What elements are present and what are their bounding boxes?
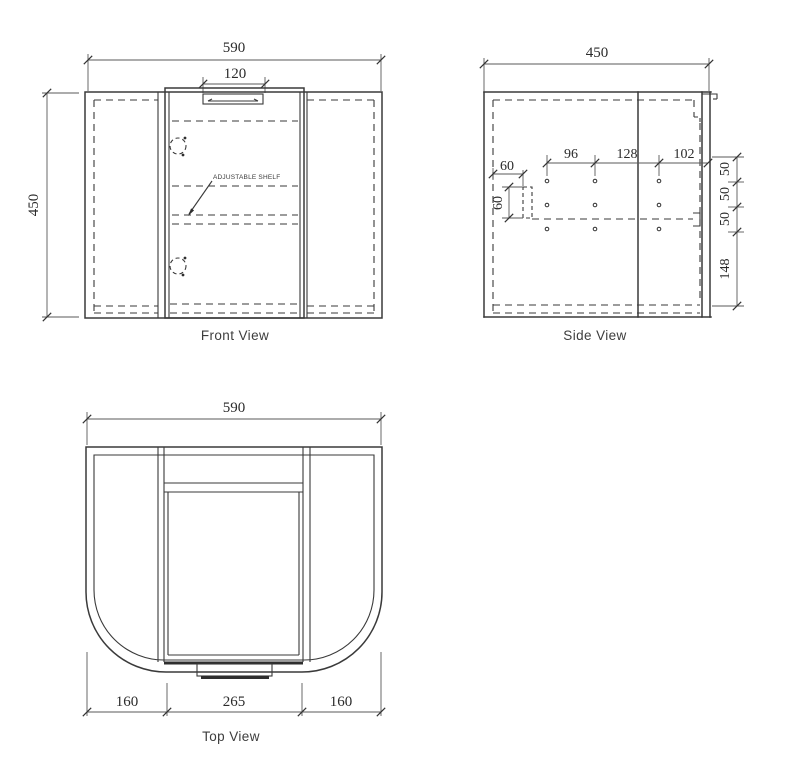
side-bracket-offset-dimension: 60 [489, 159, 527, 186]
front-cabinet-outline [85, 88, 382, 318]
top-middle-compartment [164, 483, 303, 678]
top-partitions [158, 447, 310, 662]
top-view: 590 [83, 400, 385, 744]
front-view: 590 120 450 [26, 40, 385, 343]
side-bracket-hidden [523, 187, 532, 218]
top-view-caption: Top View [202, 729, 260, 744]
technical-drawing-page: 590 120 450 [0, 0, 787, 759]
front-right-panel-hidden-lines [307, 100, 374, 313]
front-door-panel [165, 88, 304, 318]
side-view-caption: Side View [563, 328, 626, 343]
top-width-dim-label: 590 [223, 400, 246, 416]
top-dim-160-right-label: 160 [330, 694, 353, 710]
side-dim-50-3-label: 50 [718, 212, 733, 226]
top-dim-160-left-label: 160 [116, 694, 139, 710]
side-hole-column-dimensions: 96 128 102 [543, 147, 712, 176]
front-handle-dimension: 120 [199, 66, 269, 93]
top-dim-265-label: 265 [223, 694, 246, 710]
side-depth-dimension: 450 [480, 45, 713, 91]
front-view-caption: Front View [201, 328, 269, 343]
side-dim-50-2-label: 50 [718, 187, 733, 201]
side-dim-148-label: 148 [718, 259, 733, 280]
front-shelf-hidden-lines [170, 121, 299, 313]
front-width-dim-label: 590 [223, 40, 246, 56]
side-shelf-end-bracket [693, 213, 700, 226]
front-height-dimension: 450 [26, 89, 79, 321]
side-dim-102-label: 102 [674, 147, 695, 162]
front-shelf-callout: ADJUSTABLE SHELF [188, 174, 280, 216]
front-handle-dim-label: 120 [224, 66, 247, 82]
side-dim-60v-label: 60 [491, 196, 506, 210]
side-dim-96-label: 96 [564, 147, 578, 162]
adjustable-shelf-label: ADJUSTABLE SHELF [213, 174, 280, 181]
top-shell-outline [86, 447, 382, 672]
side-dim-50-1-label: 50 [718, 162, 733, 176]
side-depth-dim-label: 450 [586, 45, 609, 61]
side-bracket-height-dimension: 60 [491, 183, 523, 222]
side-view: 450 [480, 45, 744, 343]
top-width-dimension: 590 [83, 400, 385, 445]
side-dim-60h-label: 60 [500, 159, 514, 174]
front-hinge-bottom [170, 257, 186, 277]
side-row-spacing-dimensions: 50 50 50 148 [712, 153, 744, 310]
side-cabinet-outline [484, 92, 717, 317]
front-left-panel-hidden-lines [94, 100, 158, 313]
front-hinge-top [170, 137, 186, 157]
front-handle-recess [203, 94, 263, 104]
top-handle-recess [197, 664, 272, 676]
front-height-dim-label: 450 [26, 194, 42, 217]
side-dim-128-label: 128 [617, 147, 638, 162]
side-shelf-pin-holes [545, 179, 661, 231]
callout-arrowhead [188, 208, 194, 216]
cabinet-drawing: 590 120 450 [0, 0, 787, 759]
